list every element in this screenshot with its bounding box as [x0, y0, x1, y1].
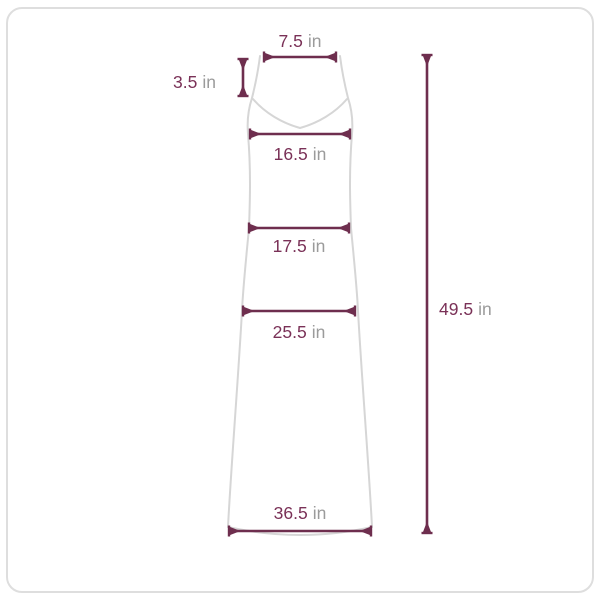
arrowhead-icon: [423, 522, 431, 533]
length-unit: in: [478, 299, 492, 319]
strap-drop-label: 3.5in: [173, 72, 216, 92]
bust-dimension: 16.5in: [249, 129, 351, 165]
length-label: 49.5in: [439, 299, 492, 319]
hip-dimension: 25.5in: [242, 306, 356, 343]
arrowhead-icon: [338, 224, 349, 232]
waist-unit: in: [312, 236, 326, 256]
dress-size-diagram: 7.5in 3.5in 16.5in 17.5in: [0, 0, 600, 600]
strap-drop-dimension: 3.5in: [173, 58, 248, 97]
hip-value: 25.5: [273, 322, 307, 342]
length-dimension: 49.5in: [422, 54, 492, 534]
arrowhead-icon: [344, 307, 355, 315]
bust-unit: in: [313, 144, 327, 164]
hem-width-unit: in: [313, 503, 327, 523]
hem-width-dimension: 36.5in: [228, 503, 372, 537]
arrowhead-icon: [251, 130, 262, 138]
arrowhead-icon: [325, 53, 336, 61]
shoulder-width-unit: in: [308, 31, 322, 51]
strap-drop-unit: in: [202, 72, 216, 92]
arrowhead-icon: [265, 53, 276, 61]
bust-label: 16.5in: [274, 144, 327, 164]
length-value: 49.5: [439, 299, 473, 319]
waist-dimension: 17.5in: [248, 223, 350, 257]
arrowhead-icon: [239, 60, 247, 71]
bust-value: 16.5: [274, 144, 308, 164]
hem-width-label: 36.5in: [274, 503, 327, 523]
arrowhead-icon: [244, 307, 255, 315]
shoulder-width-value: 7.5: [279, 31, 303, 51]
hem-width-value: 36.5: [274, 503, 308, 523]
dress-outline: [228, 56, 372, 535]
arrowhead-icon: [239, 85, 247, 96]
waist-value: 17.5: [273, 236, 307, 256]
measurement-canvas: 7.5in 3.5in 16.5in 17.5in: [0, 0, 600, 600]
hip-label: 25.5in: [273, 322, 326, 342]
arrowhead-icon: [423, 56, 431, 67]
shoulder-width-dimension: 7.5in: [263, 31, 337, 63]
strap-drop-value: 3.5: [173, 72, 197, 92]
shoulder-width-label: 7.5in: [279, 31, 322, 51]
arrowhead-icon: [250, 224, 261, 232]
waist-label: 17.5in: [273, 236, 326, 256]
arrowhead-icon: [339, 130, 350, 138]
hip-unit: in: [312, 322, 326, 342]
v-neckline: [253, 99, 347, 128]
